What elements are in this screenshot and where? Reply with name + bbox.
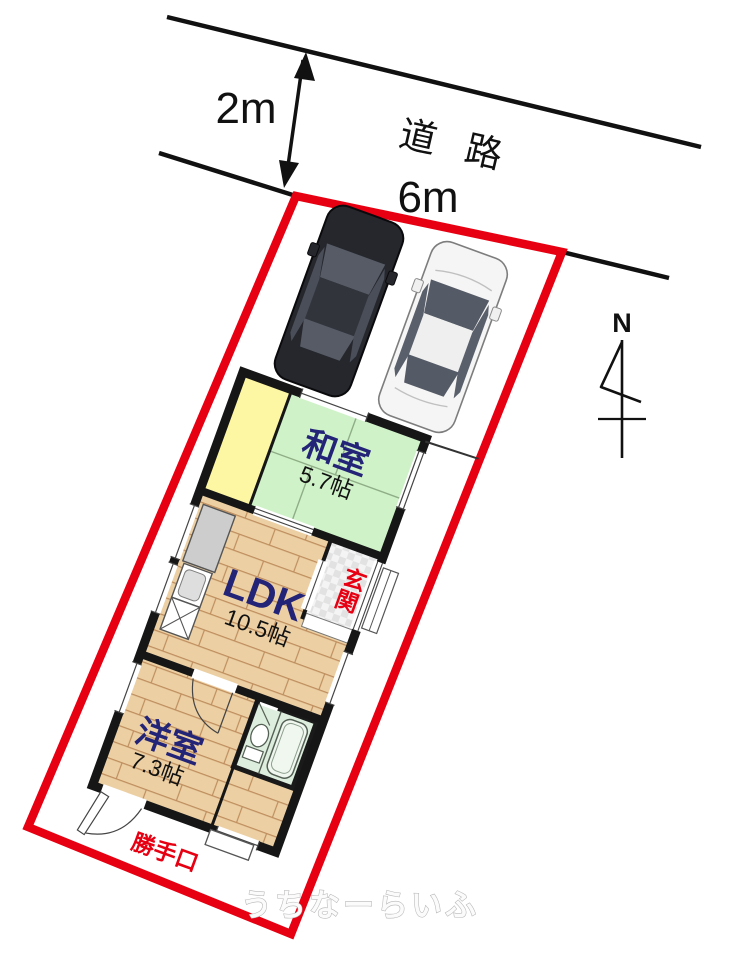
gate-line [425,440,478,461]
road-name-label: 道 路 [396,113,517,179]
road-width-dimension-arrow [279,52,315,188]
site-plan-canvas: 2m 道 路 6m N [0,0,731,960]
north-letter: N [612,308,632,338]
building-floor-plan: 和室 5.7帖 LDK 10.5帖 玄関 洋室 7.3帖 勝手口 [70,366,480,920]
road-width-label: 2m [215,84,276,133]
north-compass-icon: N [598,308,646,458]
floor-plan-page: 2m 道 路 6m N [0,0,731,960]
watermark-text: うちなーらいふ [241,888,479,923]
road-group: 2m 道 路 6m [159,17,701,278]
frontage-width-label: 6m [397,173,458,222]
